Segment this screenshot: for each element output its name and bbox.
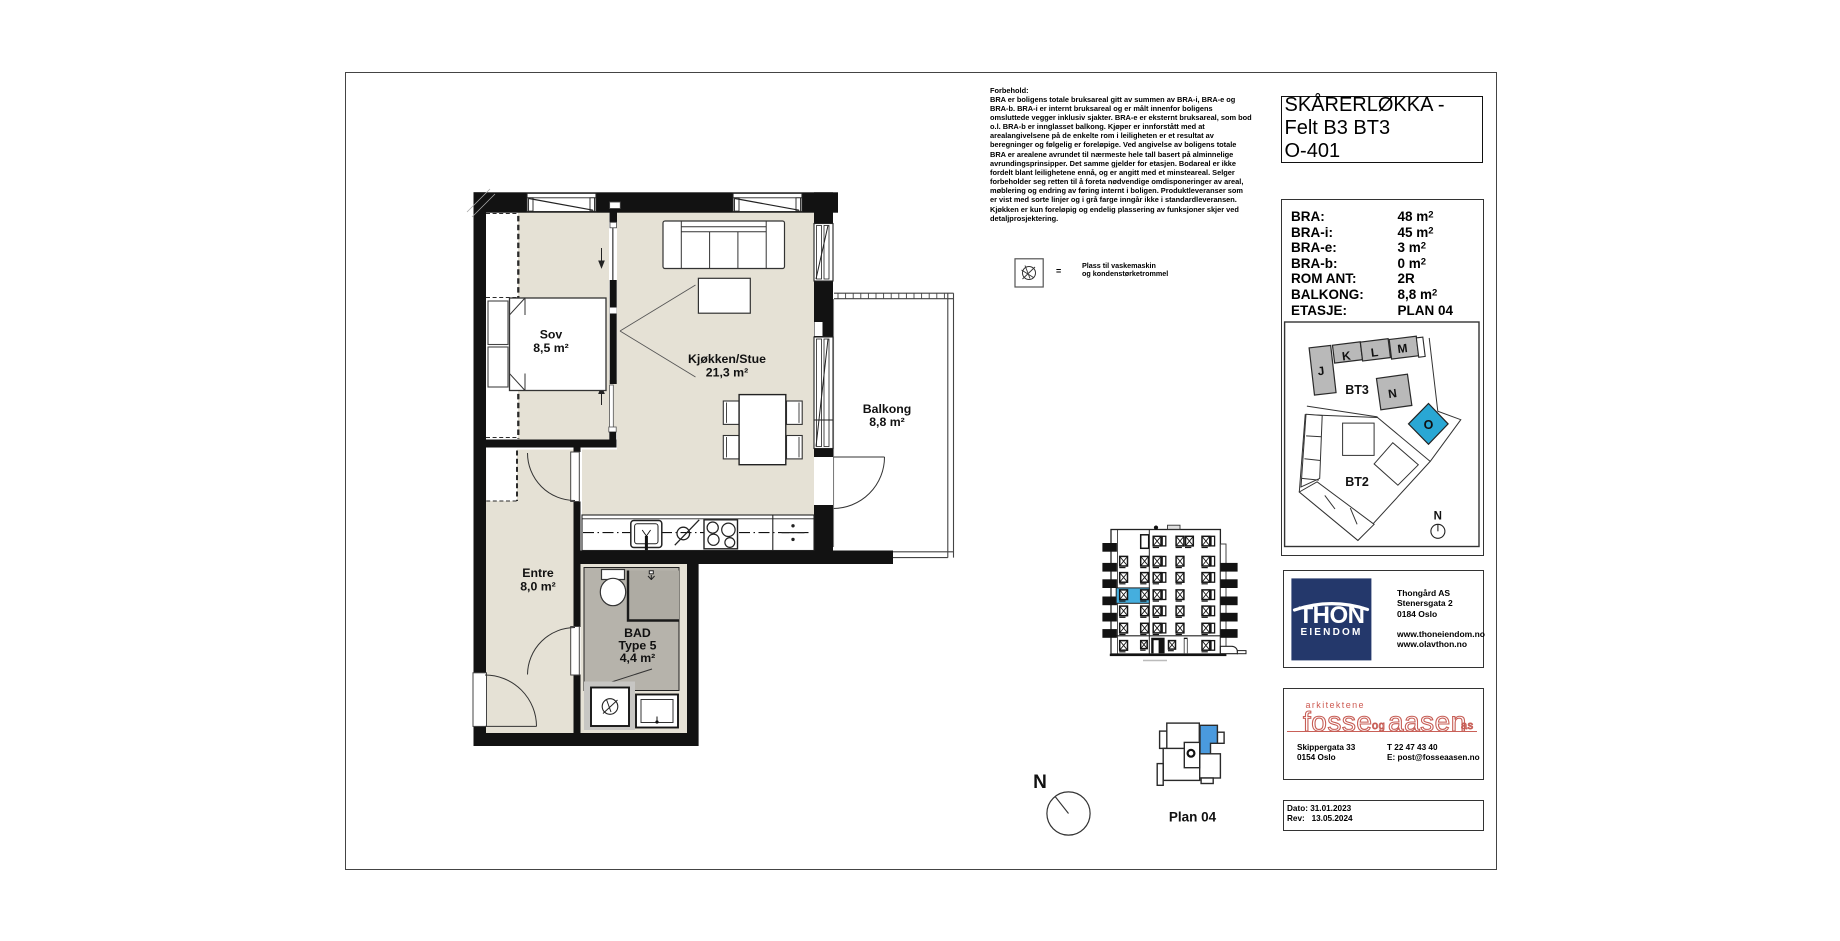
svg-text:21,3 m²: 21,3 m²: [706, 366, 748, 380]
svg-text:8,8 m²: 8,8 m²: [869, 415, 905, 429]
svg-text:4,4 m²: 4,4 m²: [620, 651, 656, 665]
svg-text:Plan 04: Plan 04: [1169, 810, 1217, 825]
svg-text:Balkong: Balkong: [863, 402, 912, 416]
svg-text:N: N: [1033, 772, 1047, 793]
svg-text:8,5 m²: 8,5 m²: [533, 341, 569, 355]
svg-text:8,0 m²: 8,0 m²: [520, 580, 556, 594]
svg-text:Entre: Entre: [522, 566, 554, 580]
svg-text:Kjøkken/Stue: Kjøkken/Stue: [688, 352, 766, 366]
svg-text:Sov: Sov: [540, 328, 563, 342]
